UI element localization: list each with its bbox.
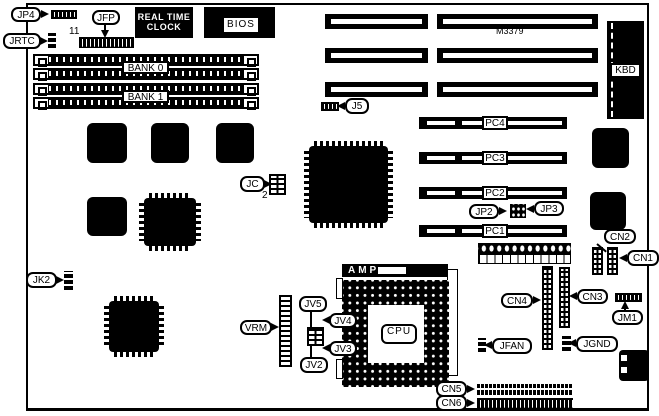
jrtc-component: [48, 33, 56, 48]
qfp-chip-bottom-left: [104, 296, 164, 357]
isa-slot-2-left: [325, 48, 428, 63]
jfan-label: JFAN: [492, 338, 532, 354]
slot-stripe: [427, 156, 455, 160]
simm-clip: [243, 69, 258, 79]
jp2-label: JP2: [469, 204, 499, 219]
chip-mid-2: [151, 123, 189, 163]
chip-right-upper: [592, 128, 629, 168]
amp-label: AMP: [348, 265, 379, 276]
m3379-text: M3379: [496, 26, 524, 37]
qfp-chip-large: [304, 141, 393, 228]
jfp-label-text: JFP: [97, 13, 115, 24]
jm1-pointer: [621, 301, 629, 309]
jgnd-label: JGND: [576, 336, 618, 352]
jp3-label: JP3: [534, 201, 564, 216]
jp2-jp3-jumper-block: [510, 204, 526, 218]
slot-stripe: [427, 121, 455, 125]
jk2-connector: [64, 271, 73, 290]
jv3-pointer: [322, 344, 330, 352]
rtc-line1: REAL TIME: [135, 12, 193, 22]
cn1-pointer: [619, 254, 627, 262]
simm-clip: [243, 55, 258, 65]
rtc-chip: REAL TIME CLOCK: [135, 7, 193, 38]
simm-clip: [243, 98, 258, 108]
jp4-pointer: [41, 10, 49, 18]
jp2-pointer: [499, 207, 507, 215]
slot-stripe: [462, 191, 562, 195]
jrtc-label-text: JRTC: [9, 36, 34, 47]
slot-stripe: [462, 156, 562, 160]
bank0-label: BANK 0: [122, 61, 169, 74]
cpu-label: CPU: [381, 324, 417, 344]
cn6-pointer: [467, 399, 475, 407]
din-connector: [619, 350, 649, 381]
slot-stripe: [331, 19, 422, 24]
cn4-connector: [542, 266, 553, 350]
amp-window: [378, 267, 406, 274]
cn5-pointer: [467, 385, 475, 393]
slot-stripe: [443, 19, 592, 24]
motherboard-diagram: JP4 JRTC JFP 11 REAL TIME CLOCK BIOS: [0, 0, 659, 416]
cn2-label: CN2: [604, 229, 636, 244]
cpu-socket: CPU: [342, 280, 449, 387]
qfp-chip-body: [309, 146, 388, 223]
chip-mid-4: [87, 197, 127, 236]
qfp-chip-body: [144, 198, 196, 246]
cn6-label: CN6: [436, 395, 467, 411]
vrm-pointer: [271, 323, 279, 331]
isa-slot-2-right: [437, 48, 598, 63]
chip-mid-3: [216, 123, 254, 163]
isa-slot-3-right: [437, 82, 598, 97]
jv2-pointer-line: [310, 346, 312, 357]
jk2-label: JK2: [26, 272, 57, 288]
chip-right-lower: [590, 192, 626, 230]
jv4-label: JV4: [329, 313, 357, 328]
j5-label: J5: [345, 98, 369, 114]
cn3-label: CN3: [577, 289, 608, 304]
isa-slot-1-left: [325, 14, 428, 29]
socket-tab-lower: [336, 359, 343, 379]
slot-stripe: [462, 229, 562, 233]
pc4-label: PC4: [482, 116, 508, 130]
cn1-label: CN1: [627, 250, 659, 266]
bios-chip: BIOS: [204, 7, 275, 38]
jv2-label: JV2: [300, 357, 328, 373]
jv4-pointer: [322, 316, 330, 324]
jc-pointer: [264, 180, 272, 188]
bank1-label: BANK 1: [122, 90, 169, 103]
jfp-pin1-number: 11: [69, 26, 79, 37]
jfp-connector: [79, 37, 134, 48]
cn6-connector: [477, 398, 573, 409]
jv5-label: JV5: [299, 296, 327, 312]
simm-clip: [243, 84, 258, 94]
simm-clip: [34, 55, 49, 65]
cn5-connector: [477, 384, 573, 395]
slot-stripe: [443, 87, 592, 92]
j5-pointer: [337, 102, 345, 110]
slot-stripe: [331, 53, 422, 58]
vrm-connector: [279, 295, 292, 367]
jfp-pointer: [101, 30, 109, 38]
cn4-label: CN4: [501, 293, 533, 308]
power-connector-body: [478, 254, 571, 264]
simm-clip: [34, 84, 49, 94]
rtc-chip-text: REAL TIME CLOCK: [135, 12, 193, 32]
jfp-label: JFP: [92, 10, 120, 25]
power-connector-pins: [478, 243, 571, 254]
rtc-line2: CLOCK: [135, 22, 193, 32]
qfp-chip-mid: [139, 193, 201, 251]
jp3-pointer: [526, 205, 534, 213]
cn1-header: [607, 247, 618, 275]
jp4-label-text: JP4: [17, 10, 34, 21]
jv3-label: JV3: [329, 341, 357, 356]
kbd-label: KBD: [610, 63, 641, 78]
pc3-label: PC3: [482, 151, 508, 165]
slot-stripe: [427, 229, 455, 233]
pc1-label: PC1: [482, 224, 508, 238]
slot-stripe: [462, 121, 562, 125]
qfp-chip-body: [109, 301, 159, 352]
simm-clip: [34, 98, 49, 108]
isa-slot-3-left: [325, 82, 428, 97]
din-pin: [621, 367, 627, 373]
jp4-label: JP4: [11, 7, 41, 22]
din-pin: [621, 355, 627, 361]
jgnd-pointer: [568, 339, 576, 347]
pc2-label: PC2: [482, 186, 508, 200]
jv5-pointer-line: [310, 312, 312, 327]
slot-stripe: [443, 53, 592, 58]
cn2-header: [592, 247, 603, 275]
slot-stripe: [427, 191, 455, 195]
jfan-pointer: [484, 341, 492, 349]
cn3-pointer: [569, 292, 577, 300]
jrtc-pointer: [40, 37, 48, 45]
cn4-pointer: [533, 296, 541, 304]
slot-stripe: [331, 87, 422, 92]
jc-label: JC: [240, 176, 265, 192]
vrm-label: VRM: [240, 320, 272, 335]
simm-clip: [34, 69, 49, 79]
jp4-connector: [51, 10, 77, 19]
amp-socket-bar: AMP: [342, 264, 448, 277]
bios-chip-label: BIOS: [224, 18, 258, 32]
jrtc-label: JRTC: [3, 33, 41, 49]
chip-mid-1: [87, 123, 127, 163]
socket-tab-upper: [336, 278, 343, 299]
jk2-pointer: [56, 276, 64, 284]
jm1-label: JM1: [612, 310, 643, 325]
jc-pin2-number: 2: [262, 190, 268, 201]
